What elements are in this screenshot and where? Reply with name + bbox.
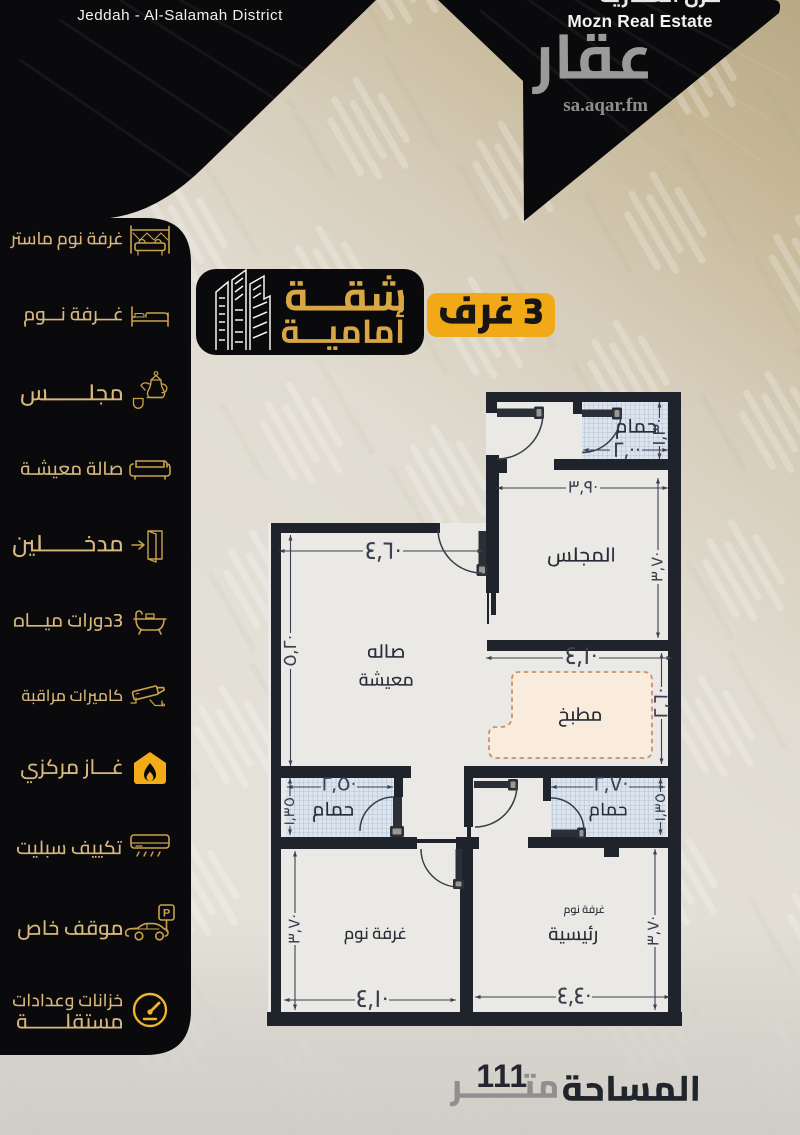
svg-text:Jeddah - Al-Salamah District: Jeddah - Al-Salamah District — [77, 7, 283, 24]
svg-text:P: P — [163, 908, 170, 920]
svg-text:Mozn Real Estate: Mozn Real Estate — [567, 11, 713, 31]
svg-text:111: 111 — [476, 1058, 527, 1094]
svg-text:sa.aqar.fm: sa.aqar.fm — [563, 95, 648, 116]
